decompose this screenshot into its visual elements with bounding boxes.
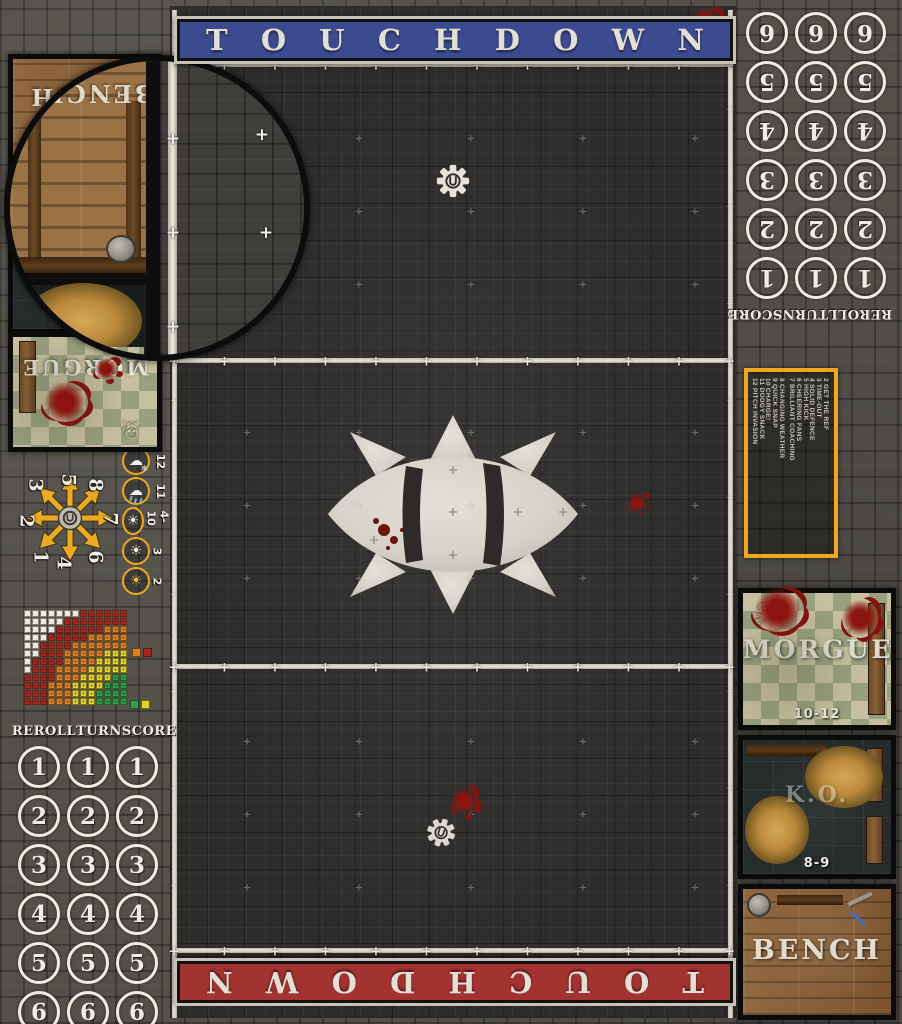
pitch-cross-mark: +	[691, 574, 699, 585]
range-ruler-cell	[48, 634, 55, 641]
range-ruler-cell	[120, 674, 127, 681]
scatter-template: 12345678	[16, 466, 128, 576]
range-ruler-cell	[112, 610, 119, 617]
range-ruler-cell	[120, 658, 127, 665]
range-ruler-cell	[32, 610, 39, 617]
range-ruler-cell	[96, 634, 103, 641]
pitch-cross-mark: +	[371, 355, 382, 370]
inset-cross-mark: +	[166, 223, 180, 243]
range-ruler-cell	[96, 682, 103, 689]
turn-track-bottom-left: REROLLTURNSCORE 111222333444555666	[12, 724, 164, 1024]
pitch-cross-mark: +	[170, 687, 178, 698]
pitch-cross-mark: +	[270, 355, 281, 370]
track-number-circle: 1	[844, 257, 886, 299]
legend-swatch	[141, 700, 150, 709]
range-ruler-cell	[32, 674, 39, 681]
scatter-number: 3	[25, 478, 47, 491]
banner-letter: N	[206, 965, 233, 999]
range-ruler-cell	[96, 642, 103, 649]
weather-track: ☁❄12☁11☀4-10☀3☀2	[122, 446, 168, 596]
pitch-cross-mark: +	[726, 493, 734, 504]
range-ruler-cell	[72, 610, 79, 617]
banner-bottom-plate: TOUCHDOWN	[180, 964, 730, 1000]
banner-bottom-text: TOUCHDOWN	[180, 965, 730, 999]
blood-splatter	[627, 494, 647, 512]
inset-panel-gap	[146, 61, 160, 355]
banner-letter: H	[434, 23, 461, 57]
pitch-cross-mark: +	[573, 661, 584, 676]
pitch-cross-mark: +	[691, 883, 699, 894]
pitch-cross-mark: +	[320, 355, 331, 370]
pitch-cross-mark: +	[355, 574, 363, 585]
track-row: 555	[12, 942, 164, 984]
banner-letter: C	[378, 23, 401, 57]
range-ruler-cell	[32, 650, 39, 657]
track-number-circle: 2	[67, 795, 109, 837]
spiked-ball-logo	[318, 412, 588, 621]
track-column-label: SCORE	[728, 306, 782, 321]
pitch-cross-mark: +	[467, 207, 475, 218]
range-ruler-cell	[72, 634, 79, 641]
pitch-cross-mark: +	[170, 493, 178, 504]
range-ruler-cell	[24, 682, 31, 689]
pitch-cross-mark: +	[467, 428, 475, 439]
pitch-cross-mark: +	[170, 396, 178, 407]
track-number-circle: 4	[844, 110, 886, 152]
range-ruler-cell	[88, 610, 95, 617]
range-ruler-cell	[56, 658, 63, 665]
range-ruler-cell	[40, 610, 47, 617]
track-number-circle: 2	[116, 795, 158, 837]
range-ruler-cell	[120, 650, 127, 657]
range-ruler-cell	[112, 650, 119, 657]
range-ruler-cell	[40, 642, 47, 649]
range-ruler-cell	[56, 634, 63, 641]
pitch-cross-mark: +	[467, 574, 475, 585]
endzone-line-bottom	[172, 948, 733, 953]
track-row: 222	[740, 208, 892, 250]
track-column-label: TURN	[76, 724, 122, 739]
pitch-cross-mark: +	[467, 737, 475, 748]
pitch-cross-mark: +	[579, 207, 587, 218]
banner-letter: N	[677, 23, 704, 57]
range-ruler-cell	[96, 626, 103, 633]
pitch-cross-mark: +	[691, 134, 699, 145]
range-ruler-cell	[120, 634, 127, 641]
range-ruler-cell	[48, 682, 55, 689]
pitch-cross-mark: +	[522, 661, 533, 676]
pitch-cross-mark: +	[355, 883, 363, 894]
banner-letter: W	[266, 965, 299, 999]
track-number-circle: 5	[116, 942, 158, 984]
range-ruler-cell	[104, 642, 111, 649]
range-ruler-cell	[120, 610, 127, 617]
touchdown-banner-top: TOUCHDOWN	[174, 16, 736, 64]
pitch-cross-mark: +	[355, 134, 363, 145]
range-ruler-chart	[24, 610, 127, 705]
range-ruler-cell	[88, 634, 95, 641]
track-row: 333	[12, 844, 164, 886]
range-ruler-cell	[104, 658, 111, 665]
pitch-cross-mark: +	[726, 687, 734, 698]
range-ruler-cell	[80, 618, 87, 625]
weather-range-label: 2	[150, 577, 163, 585]
range-ruler-cell	[40, 626, 47, 633]
range-ruler-cell	[64, 666, 71, 673]
range-ruler-cell	[88, 626, 95, 633]
banner-letter: W	[612, 23, 645, 57]
blood-bowl-game-mat: TOUCHDOWN TOUCHDOWN REROLLTURNSCORE 1112…	[0, 0, 902, 1024]
pitch-cross-mark: +	[726, 396, 734, 407]
track-row: 444	[740, 110, 892, 152]
pitch-cross-mark: +	[579, 280, 587, 291]
weather-row: ☀2	[122, 566, 168, 596]
track-number-circle: 4	[116, 893, 158, 935]
track-number-circle: 5	[67, 942, 109, 984]
range-ruler-cell	[112, 666, 119, 673]
track-number-circle: 6	[844, 12, 886, 54]
inset-bench-label: BENCH	[38, 79, 155, 108]
range-ruler-cell	[112, 690, 119, 697]
track-number-circle: 3	[18, 844, 60, 886]
pitch-cross-mark: +	[170, 881, 178, 892]
pitch-cross-mark: +	[726, 590, 734, 601]
range-ruler-cell	[24, 618, 31, 625]
range-ruler-cell	[56, 666, 63, 673]
range-ruler-cell	[32, 666, 39, 673]
touchdown-banner-bottom: TOUCHDOWN	[174, 958, 736, 1006]
banner-letter: D	[390, 965, 415, 999]
kickoff-table: 2 GET THE REF3 TIME-OUT4 SOLID DEFENCE5 …	[744, 368, 838, 558]
track-column-label: REROLL	[12, 724, 76, 739]
range-ruler-cell	[56, 698, 63, 705]
range-ruler-cell	[96, 674, 103, 681]
range-ruler-cell	[48, 674, 55, 681]
banner-letter: C	[509, 965, 532, 999]
track-row: 111	[12, 746, 164, 788]
track-number-circle: 1	[67, 746, 109, 788]
range-ruler-cell	[32, 642, 39, 649]
weather-range-label: 11	[154, 483, 167, 498]
pitch-cross-mark: +	[691, 810, 699, 821]
range-ruler-cell	[24, 634, 31, 641]
track-number-circle: 6	[746, 12, 788, 54]
range-ruler-cell	[104, 618, 111, 625]
pitch-cross-mark: +	[579, 134, 587, 145]
pitch-cross-mark: +	[724, 661, 735, 676]
range-ruler-cell	[32, 618, 39, 625]
range-ruler-cell	[40, 666, 47, 673]
banner-letter: T	[682, 965, 704, 999]
range-ruler-cell	[24, 650, 31, 657]
banner-letter: T	[206, 23, 228, 57]
track-number-circle: 4	[795, 110, 837, 152]
scatter-number: 1	[30, 550, 52, 563]
range-ruler-cell	[88, 618, 95, 625]
range-ruler-cell	[120, 618, 127, 625]
range-ruler-cell	[48, 626, 55, 633]
track-number-circle: 2	[844, 208, 886, 250]
range-ruler-cell	[96, 610, 103, 617]
kickoff-entry: 10 CHARGE!	[764, 378, 771, 548]
track-number-circle: 5	[746, 61, 788, 103]
maker-gear-logo-top	[434, 162, 472, 204]
inset-cross-mark: +	[255, 125, 269, 145]
track-column-label: REROLL	[828, 306, 892, 321]
pitch-cross-mark: +	[726, 784, 734, 795]
pitch-cross-mark: +	[219, 661, 230, 676]
banner-top-plate: TOUCHDOWN	[180, 22, 730, 58]
kickoff-column-2: 8 CHANGING WEATHER9 QUICK SNAP10 CHARGE!…	[750, 378, 784, 548]
range-ruler-cell	[56, 626, 63, 633]
range-ruler-cell	[80, 674, 87, 681]
morgue-range: 10-12	[743, 707, 891, 722]
pitch-cross-mark: +	[472, 661, 483, 676]
ko-label: K.O.	[743, 782, 891, 808]
range-ruler-cell	[32, 658, 39, 665]
range-ruler-cell	[88, 658, 95, 665]
banner-letter: O	[624, 965, 649, 999]
range-ruler-cell	[64, 626, 71, 633]
pitch-cross-mark: +	[691, 501, 699, 512]
pitch-cross-mark: +	[691, 280, 699, 291]
range-ruler-cell	[96, 666, 103, 673]
kickoff-column-1: 2 GET THE REF3 TIME-OUT4 SOLID DEFENCE5 …	[787, 378, 828, 548]
range-ruler-cell	[88, 698, 95, 705]
detail-magnifier-inset: BENCH + + + + +	[4, 55, 310, 361]
pitch-cross-mark: +	[674, 355, 685, 370]
legend-swatch	[132, 648, 141, 657]
legend-swatch	[143, 648, 152, 657]
range-ruler-cell	[64, 650, 71, 657]
pitch-cross-mark: +	[169, 661, 180, 676]
dugout-right-ko: K.O. 8-9	[738, 735, 896, 879]
range-ruler-cell	[88, 682, 95, 689]
track-number-circle: 6	[18, 991, 60, 1024]
track-number-circle: 3	[844, 159, 886, 201]
banner-letter: U	[319, 23, 344, 57]
track-number-circle: 1	[795, 257, 837, 299]
pitch-cross-mark: +	[355, 428, 363, 439]
kickoff-entry: 6 CHEERING FANS	[794, 378, 801, 548]
range-ruler-cell	[32, 698, 39, 705]
pitch-cross-mark: +	[726, 105, 734, 116]
pitch-cross-mark: +	[320, 661, 331, 676]
track-number-circle: 3	[67, 844, 109, 886]
range-ruler-cell	[88, 642, 95, 649]
range-ruler-cell	[40, 658, 47, 665]
range-ruler-cell	[120, 698, 127, 705]
scatter-number: 4	[53, 556, 75, 569]
track-number-circle: 1	[116, 746, 158, 788]
range-ruler-cell	[72, 698, 79, 705]
scatter-number: 6	[85, 550, 107, 563]
range-ruler-cell	[56, 642, 63, 649]
range-ruler-cell	[104, 698, 111, 705]
range-ruler-cell	[96, 650, 103, 657]
banner-letter: O	[332, 965, 357, 999]
range-ruler-cell	[72, 618, 79, 625]
blood-splatter	[42, 382, 88, 422]
kickoff-table-text: 2 GET THE REF3 TIME-OUT4 SOLID DEFENCE5 …	[754, 378, 828, 548]
range-ruler-cell	[40, 618, 47, 625]
pitch-cross-mark: +	[579, 737, 587, 748]
range-ruler-cell	[112, 674, 119, 681]
weather-range-label: 3	[150, 547, 163, 555]
banner-letter: D	[495, 23, 520, 57]
range-ruler-cell	[104, 690, 111, 697]
weather-glyph: ☀	[127, 514, 140, 528]
track-row: 555	[740, 61, 892, 103]
range-ruler-cell	[120, 666, 127, 673]
range-ruler-cell	[48, 618, 55, 625]
range-ruler-cell	[48, 658, 55, 665]
pitch-cross-mark: +	[243, 501, 251, 512]
track-column-label: TURN	[782, 306, 828, 321]
range-ruler-cell	[32, 626, 39, 633]
range-ruler-cell	[40, 690, 47, 697]
third-line-upper	[172, 358, 733, 363]
range-ruler-cell	[120, 682, 127, 689]
banner-letter: O	[261, 23, 286, 57]
pitch-cross-mark: +	[472, 355, 483, 370]
track-number-circle: 4	[18, 893, 60, 935]
range-ruler-cell	[96, 698, 103, 705]
range-ruler-cell	[120, 626, 127, 633]
banner-letter: O	[553, 23, 578, 57]
range-ruler-cell	[24, 690, 31, 697]
range-ruler-cell	[72, 682, 79, 689]
range-ruler-cell	[80, 666, 87, 673]
inset-cross-mark: +	[166, 129, 180, 149]
pitch-cross-mark: +	[623, 661, 634, 676]
range-ruler-cell	[104, 626, 111, 633]
pitch-cross-mark: +	[243, 737, 251, 748]
bench-label: BENCH	[743, 935, 891, 966]
pitch-cross-mark: +	[355, 737, 363, 748]
range-ruler-cell	[64, 674, 71, 681]
range-ruler-cell	[80, 626, 87, 633]
scatter-number: 8	[85, 478, 107, 491]
range-ruler-cell	[72, 690, 79, 697]
hammer-icon	[847, 892, 872, 907]
kickoff-entry: 12 PITCH INVASION	[750, 378, 757, 548]
skeleton-icon: ☠	[121, 415, 143, 443]
pitch-cross-mark: +	[270, 661, 281, 676]
banner-top-text: TOUCHDOWN	[180, 23, 730, 57]
pitch-cross-mark: +	[691, 207, 699, 218]
range-ruler-cell	[112, 618, 119, 625]
pitch-cross-mark: +	[623, 355, 634, 370]
wood-bar	[777, 895, 843, 905]
range-ruler-cell	[56, 610, 63, 617]
range-ruler-cell	[96, 690, 103, 697]
pitch-cross-mark: +	[219, 355, 230, 370]
pitch-cross-mark: +	[691, 428, 699, 439]
inset-sideline	[168, 61, 177, 355]
morgue-label: MORGUE	[743, 635, 891, 664]
range-ruler-cell	[48, 650, 55, 657]
pitch-cross-mark: +	[243, 428, 251, 439]
track-number-circle: 3	[746, 159, 788, 201]
track-number-circle: 6	[116, 991, 158, 1024]
range-ruler-cell	[112, 698, 119, 705]
range-ruler-cell	[56, 690, 63, 697]
inset-cross-mark: +	[166, 317, 180, 337]
pitch-cross-mark: +	[243, 574, 251, 585]
pitch-cross-mark: +	[579, 810, 587, 821]
track-row: 444	[12, 893, 164, 935]
range-ruler-cell	[80, 650, 87, 657]
range-ruler-cell	[64, 634, 71, 641]
range-ruler-cell	[104, 666, 111, 673]
track-number-circle: 4	[67, 893, 109, 935]
weather-glyph: ☀	[130, 544, 143, 558]
range-ruler-cell	[48, 610, 55, 617]
scatter-number: 2	[16, 514, 38, 527]
range-ruler-cell	[40, 674, 47, 681]
track-number-circle: 6	[795, 12, 837, 54]
legend-swatch	[130, 700, 139, 709]
pitch-cross-mark: +	[243, 810, 251, 821]
range-ruler-cell	[88, 674, 95, 681]
kickoff-entry: 7 BRILLIANT COACHING	[787, 378, 794, 548]
range-ruler-cell	[80, 682, 87, 689]
track-number-circle: 1	[746, 257, 788, 299]
range-ruler-cell	[112, 682, 119, 689]
track-header: REROLLTURNSCORE	[740, 306, 892, 321]
range-ruler-cell	[120, 690, 127, 697]
snowflake-icon: ❄	[141, 464, 148, 473]
blood-splatter	[452, 786, 476, 816]
kickoff-entry: 11 DODGY SNACK	[757, 378, 764, 548]
track-row: 111	[740, 257, 892, 299]
range-ruler-cell	[120, 642, 127, 649]
range-ruler-cell	[72, 642, 79, 649]
range-ruler-cell	[72, 650, 79, 657]
pitch-cross-mark: +	[579, 501, 587, 512]
range-ruler-cell	[24, 642, 31, 649]
range-ruler-cell	[40, 650, 47, 657]
range-ruler-cell	[48, 690, 55, 697]
range-ruler-cell	[104, 634, 111, 641]
pitch-cross-mark: +	[726, 202, 734, 213]
range-ruler-cell	[40, 698, 47, 705]
pitch-cross-mark: +	[579, 574, 587, 585]
pitch-cross-mark: +	[579, 883, 587, 894]
dugout-right-bench: BENCH	[738, 884, 896, 1020]
blood-splatter	[842, 598, 878, 638]
pitch-cross-mark: +	[724, 355, 735, 370]
track-number-circle: 1	[18, 746, 60, 788]
range-ruler-cell	[64, 690, 71, 697]
range-ruler-cell	[32, 682, 39, 689]
sideline-right	[728, 10, 733, 1018]
track-column-label: SCORE	[122, 724, 176, 739]
track-number-circle: 3	[795, 159, 837, 201]
scatter-number: 5	[58, 473, 80, 486]
range-ruler-legend-2	[130, 700, 150, 709]
pitch-cross-mark: +	[243, 883, 251, 894]
range-ruler-cell	[40, 682, 47, 689]
pitch-cross-mark: +	[467, 280, 475, 291]
track-number-circle: 5	[18, 942, 60, 984]
blood-splatter	[752, 588, 804, 632]
track-row: 666	[12, 991, 164, 1024]
pitch-cross-mark: +	[355, 207, 363, 218]
range-ruler-cell	[24, 626, 31, 633]
track-number-circle: 2	[746, 208, 788, 250]
